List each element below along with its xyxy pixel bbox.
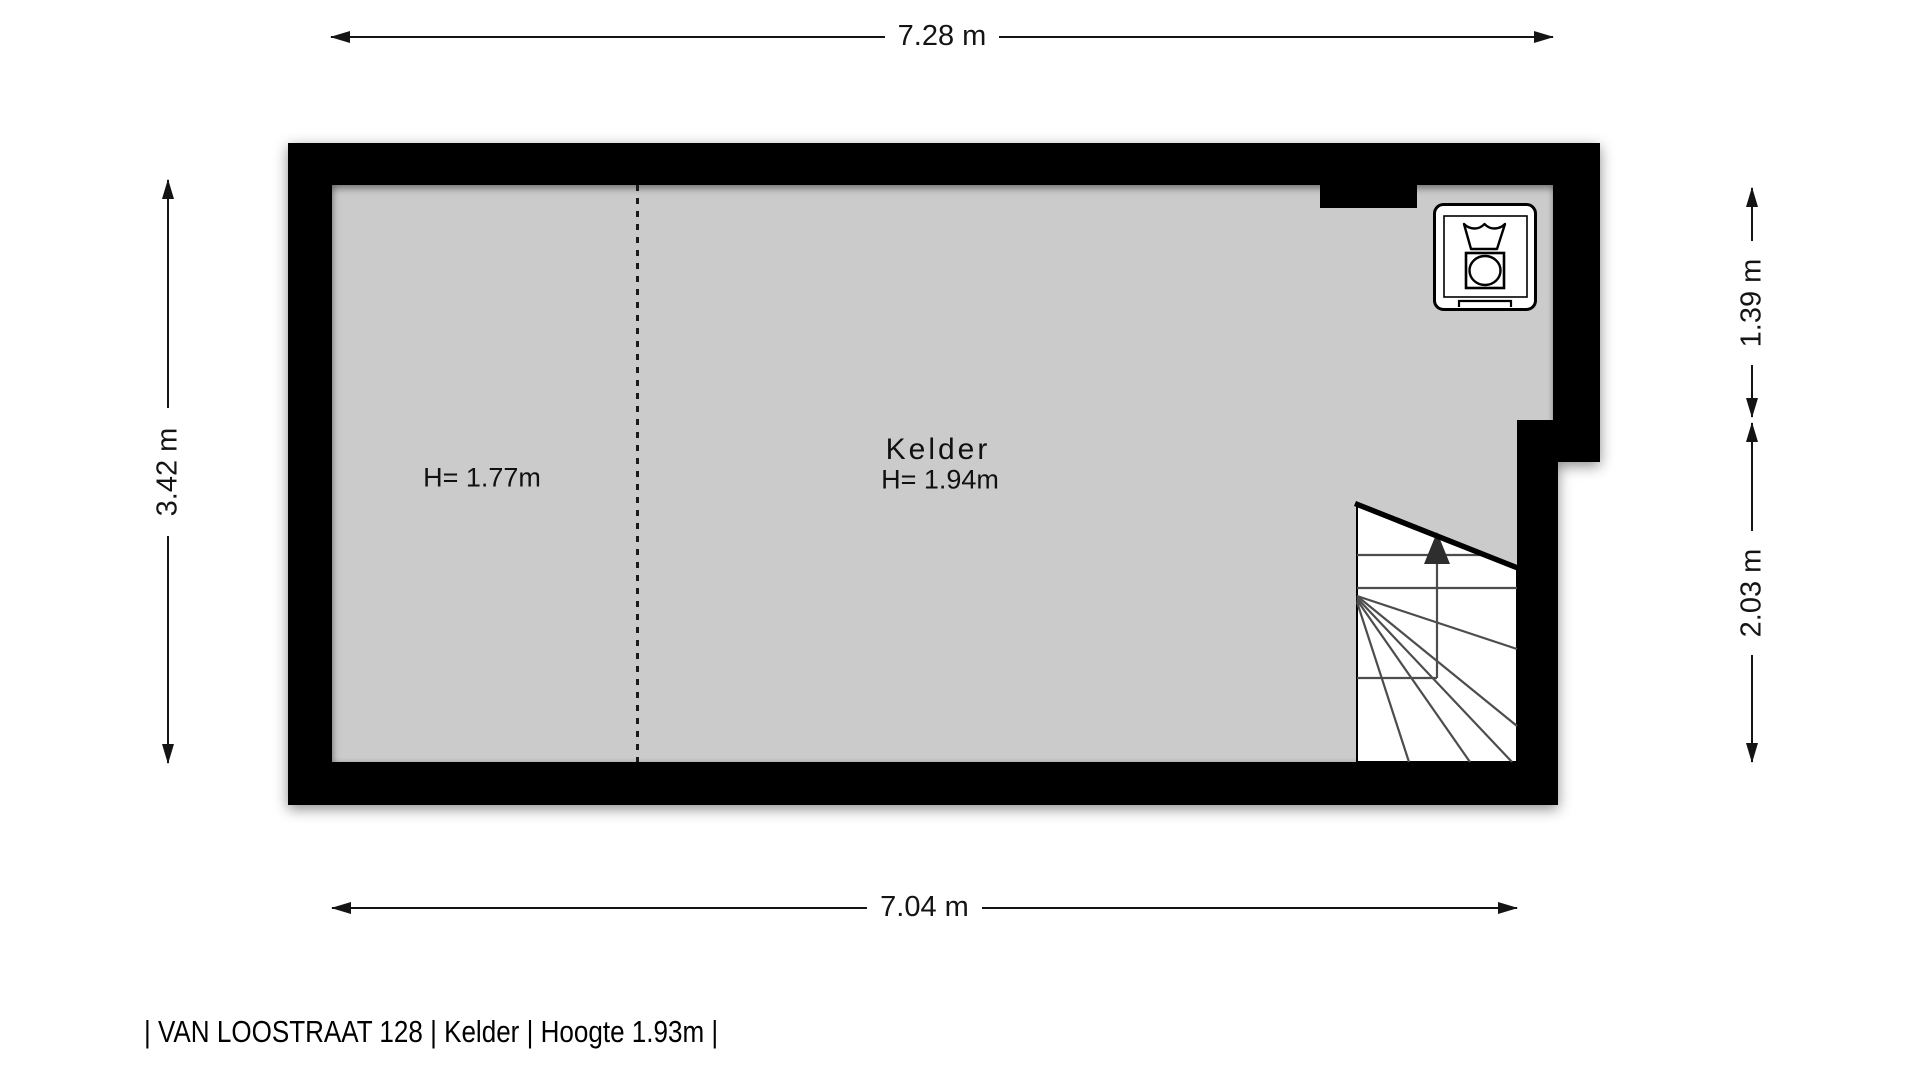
dimension-left-label: 3.42 m [152,427,185,516]
dimension-top-label: 7.28 m [898,20,987,53]
dimension-bottom-label: 7.04 m [880,891,969,924]
dimension-line [1751,365,1753,418]
dimension-line [1751,423,1753,531]
wall-right-lower [1517,420,1558,805]
floorplan-page: Kelder H= 1.94m H= 1.77m 7.28 m 7.04 m 3… [0,0,1920,1080]
dimension-line [331,36,885,38]
dimension-line [1751,188,1753,241]
dimension-line [1751,655,1753,763]
zone-height-label: H= 1.77m [423,463,541,494]
dimension-line [332,907,867,909]
height-zone-divider [636,185,639,762]
plan-caption: | VAN LOOSTRAAT 128 | Kelder | Hoogte 1.… [144,1014,718,1050]
dimension-right-lower-label: 2.03 m [1736,548,1769,637]
dimension-line [999,36,1553,38]
dimension-line [167,180,169,408]
wall-top [288,143,1600,185]
staircase [1353,499,1521,765]
wall-right-upper [1553,143,1600,462]
dimension-line [167,536,169,764]
wall-bottom [288,762,1558,805]
room-height-label: H= 1.94m [881,465,999,496]
washing-machine-icon [1433,203,1537,311]
room-name-label: Kelder [886,433,991,467]
dimension-right-upper-label: 1.39 m [1736,258,1769,347]
wall-left [288,143,332,805]
dimension-line [982,907,1517,909]
wall-notch [1320,184,1417,208]
